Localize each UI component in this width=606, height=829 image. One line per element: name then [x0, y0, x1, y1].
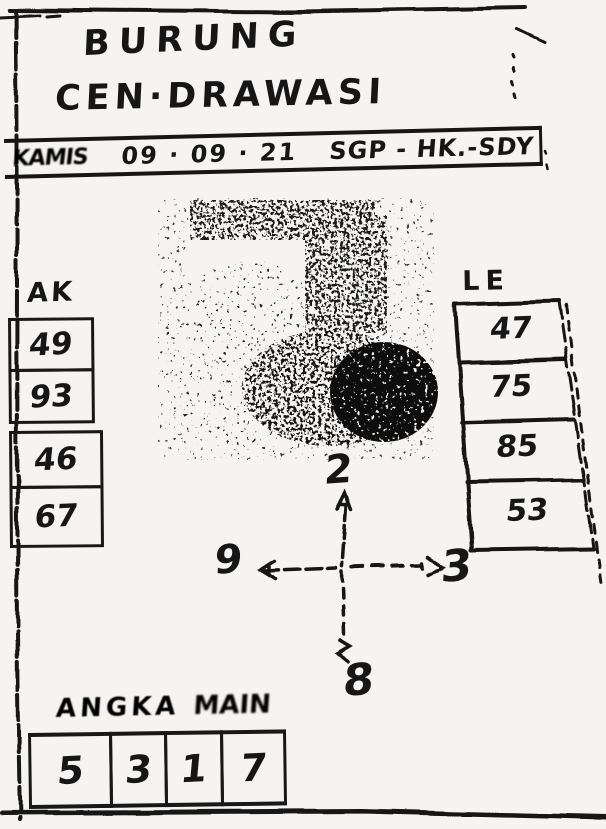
angka-main-cell: 7 — [220, 729, 287, 806]
ak-label: AK — [26, 276, 75, 309]
ak-value: 46 — [33, 441, 80, 479]
compass-number-left: 9 — [213, 536, 244, 584]
angka-main-cell: 3 — [109, 731, 168, 808]
ak-value: 67 — [33, 498, 80, 536]
compass-number-top: 2 — [323, 446, 354, 494]
angka-main-word2: MAIN — [192, 689, 271, 721]
le-value: 85 — [494, 429, 540, 465]
day-label: KAMIS — [11, 144, 89, 171]
angka-main-row: 5 3 1 7 — [28, 729, 287, 809]
angka-main-label: ANGKAMAIN — [55, 689, 272, 724]
le-value: 53 — [504, 493, 550, 529]
angka-main-cell: 5 — [28, 732, 113, 809]
prediction-sheet: BURUNG CEN·DRAWASI KAMIS 09 · 09 · 21 SG… — [0, 0, 606, 829]
ak-cell: 93 — [8, 368, 94, 424]
compass-number-right: 3 — [439, 540, 473, 593]
le-value: 75 — [488, 369, 534, 405]
compass-number-bottom: 8 — [341, 654, 375, 707]
ak-column: 49 93 46 67 — [8, 317, 104, 548]
le-value: 47 — [488, 311, 534, 347]
compass-cross — [259, 493, 443, 660]
ak-cell: 67 — [9, 485, 104, 548]
title-line-2: CEN·DRAWASI — [54, 72, 387, 119]
le-label: LE — [462, 265, 510, 297]
angka-main-digit: 5 — [55, 748, 86, 793]
ak-value: 93 — [28, 377, 75, 415]
draw-date: 09 · 09 · 21 — [120, 138, 298, 170]
bird-photo — [158, 198, 438, 460]
angka-main-digit: 1 — [179, 746, 210, 791]
arrow-up-icon — [337, 493, 351, 509]
angka-main-word1: ANGKA — [55, 691, 180, 724]
angka-main-digit: 7 — [238, 745, 269, 790]
ak-cell: 49 — [8, 317, 94, 372]
ak-value: 49 — [28, 326, 75, 364]
angka-main-digit: 3 — [123, 747, 154, 792]
market-labels: SGP - HK.-SDY — [328, 132, 535, 165]
ak-cell: 46 — [9, 430, 104, 489]
angka-main-cell: 1 — [164, 730, 224, 807]
